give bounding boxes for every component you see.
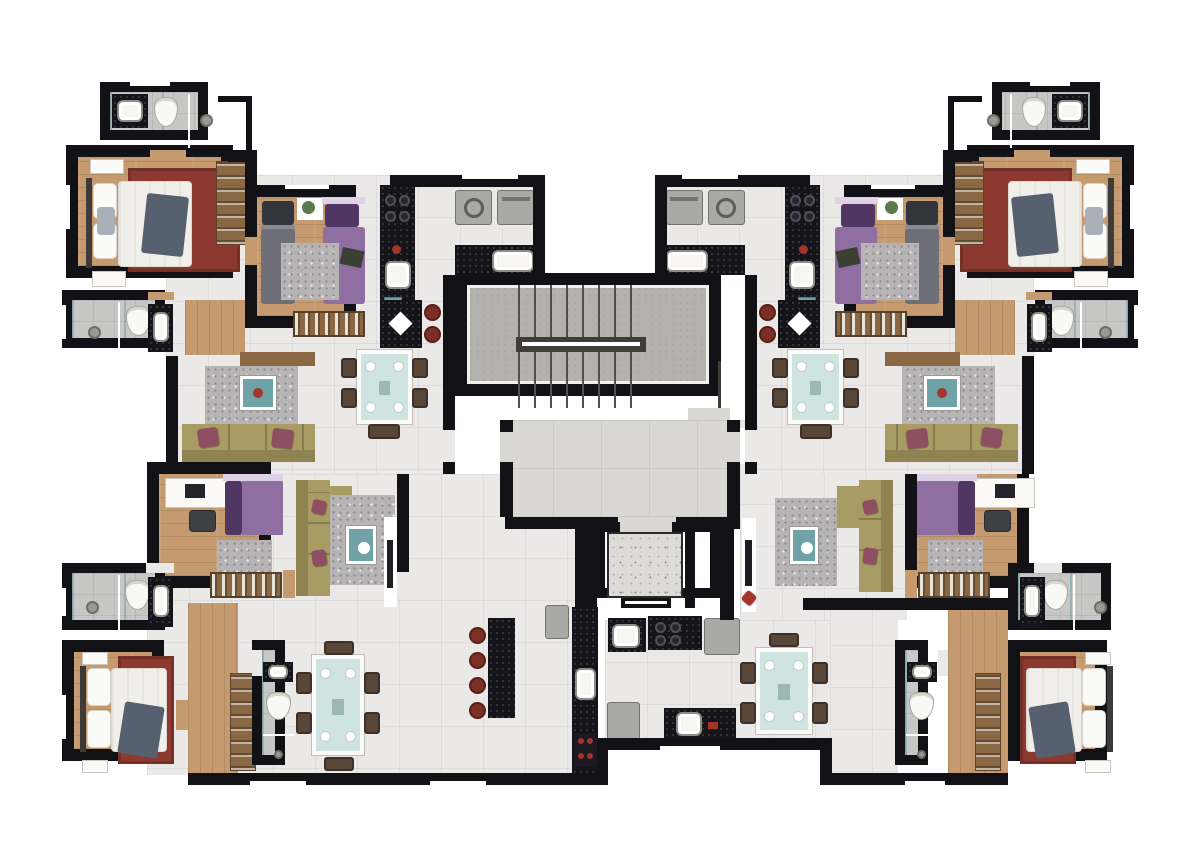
stair-flight-upper <box>518 285 646 337</box>
stair-door <box>688 408 730 420</box>
stair-wall-stub <box>718 361 721 408</box>
elevator-divider-wall <box>685 532 695 608</box>
hall-floor <box>505 420 740 517</box>
stair-flight-lower <box>518 352 646 408</box>
stair-handrail-cap <box>522 342 640 346</box>
elevator-door-slit <box>625 601 667 604</box>
hall-door-right <box>727 432 740 462</box>
core <box>0 0 1200 843</box>
shaft-wall-right <box>720 517 734 620</box>
elevator-car-floor <box>607 532 683 598</box>
elevator-threshold <box>621 598 671 608</box>
service-wall <box>575 517 597 607</box>
floor-plan <box>0 0 1200 843</box>
elevator-entry-gap <box>620 522 672 532</box>
tv-screen <box>745 540 752 586</box>
hall-door-left <box>500 432 513 462</box>
elevator-lobby <box>595 522 720 598</box>
stair-handrail <box>516 337 646 352</box>
stairwell <box>455 273 721 396</box>
